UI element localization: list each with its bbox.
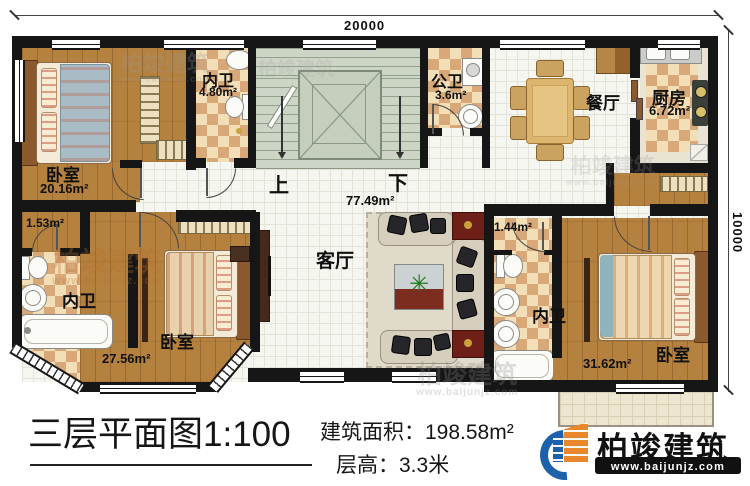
wall (630, 48, 640, 78)
sofa-pillow (430, 218, 446, 234)
wall (128, 254, 138, 348)
bed-throw (600, 255, 613, 337)
logo-building-blue (553, 438, 563, 462)
room-label-living: 客厅 (316, 246, 354, 273)
stove-burner (695, 106, 707, 118)
title-underline (30, 464, 312, 466)
bathtub-inner (24, 319, 108, 344)
wall (552, 216, 562, 358)
door-leaf (648, 216, 650, 250)
toilet-icon (225, 96, 244, 118)
dimension-height-value: 10000 (730, 212, 745, 253)
toilet-icon (503, 254, 523, 278)
window (616, 382, 684, 394)
room-area-closet-left: 1.53m² (26, 216, 64, 230)
wall (630, 118, 640, 163)
room-label-bedroom-bottom-left: 卧室 (160, 328, 194, 353)
room-area-bathroom-top-left: 4.80m² (199, 85, 237, 99)
nightstand (230, 246, 250, 262)
stairs-down-label: 下 (388, 167, 408, 196)
sink-inner (498, 294, 514, 310)
bathtub-inner (495, 354, 549, 378)
wall (80, 212, 90, 254)
door-leaf (139, 212, 141, 247)
elevator-inner-frame (312, 84, 366, 144)
room-area-kitchen: 6.72m² (649, 103, 690, 118)
sofa-pillow (409, 213, 430, 234)
side-table-dot (464, 339, 472, 347)
window (303, 38, 376, 50)
room-area-bedroom-bottom-right: 31.62m² (583, 356, 631, 371)
sideboard-cabinet (596, 44, 634, 74)
dining-chair (573, 116, 590, 140)
plant-icon: ✳ (406, 272, 432, 298)
wall (60, 248, 80, 256)
sofa-pillow (456, 274, 474, 292)
wall (482, 48, 490, 168)
wardrobe-icon (660, 176, 708, 192)
tv-icon (268, 256, 271, 296)
wall (484, 216, 494, 382)
room-area-bedroom-top-left: 20.16m² (40, 181, 88, 196)
toilet-icon (28, 256, 48, 279)
window (500, 38, 585, 50)
stove-burner (695, 86, 707, 98)
side-table-dot (464, 221, 472, 229)
sofa-pillow (386, 214, 407, 235)
stair-arrow-down-head (396, 152, 404, 159)
wall (186, 158, 206, 168)
room-area-bedroom-bottom-left: 27.56m² (102, 351, 150, 366)
window (300, 370, 344, 383)
sofa-pillow (391, 335, 411, 355)
sofa-pillow (414, 338, 432, 356)
wall (420, 36, 428, 168)
bed-blanket (60, 64, 110, 162)
logo-building-orange (564, 422, 588, 462)
window (100, 383, 196, 394)
dining-chair (510, 116, 527, 140)
bed-pillow (41, 112, 57, 152)
dimension-width-value: 20000 (344, 18, 385, 33)
window (392, 370, 436, 383)
stair-arrow-up-head (278, 152, 286, 159)
sink-inner (463, 109, 478, 124)
washing-machine-drum (466, 63, 480, 77)
floor-drain (236, 128, 242, 134)
dining-chair (510, 86, 527, 110)
dining-table-inner (532, 85, 568, 137)
wall (120, 160, 142, 168)
bathtub-faucet (24, 327, 31, 334)
room-area-public-bathroom: 3.6m² (435, 88, 466, 102)
wall (176, 210, 256, 222)
door-leaf (432, 104, 434, 134)
wall (494, 250, 512, 255)
building-area-text: 建筑面积：198.58m² (320, 416, 514, 446)
room-label-dining: 餐厅 (586, 89, 620, 114)
wall (650, 204, 710, 216)
tv-console (142, 258, 148, 342)
sliding-door (636, 98, 643, 120)
wall (22, 248, 32, 256)
brand-website-bar: www.baijunjz.com (595, 457, 741, 474)
wall (250, 212, 260, 352)
window (658, 38, 700, 50)
dining-chair (536, 60, 564, 77)
door-leaf (542, 222, 544, 250)
room-label-bedroom-bottom-right: 卧室 (656, 341, 690, 366)
wall (484, 204, 614, 216)
dining-chair (536, 144, 564, 161)
dimension-line-right (728, 30, 729, 392)
stairs-up-label: 上 (269, 169, 289, 198)
room-label-bathroom-bottom-right: 内卫 (532, 302, 566, 327)
sink-inner (498, 326, 514, 342)
brand-website: www.baijunjz.com (611, 461, 725, 473)
wardrobe-icon (140, 76, 160, 144)
window (164, 38, 244, 50)
window (13, 60, 25, 142)
bed-pillow (674, 298, 690, 336)
room-area-closet-right: 1.44m² (494, 220, 532, 234)
bed-blanket (166, 252, 214, 336)
stair-arrow-up (281, 96, 283, 154)
tv-console (584, 258, 590, 342)
bed-pillow (674, 258, 690, 296)
kitchen-corner-unit (690, 144, 708, 161)
brand-logo-icon (540, 420, 594, 474)
sink-inner (25, 290, 41, 306)
wall (470, 128, 490, 136)
door-leaf (206, 168, 208, 196)
wall (630, 163, 718, 173)
wall (248, 36, 256, 168)
door-leaf (140, 168, 142, 198)
floor-height-text: 层高：3.3米 (336, 449, 449, 479)
wall (248, 368, 488, 382)
page-title: 三层平面图1:100 (28, 406, 291, 457)
room-label-bathroom-bottom-left: 内卫 (62, 287, 96, 312)
bed-pillow (41, 68, 57, 108)
dimension-line-top (14, 15, 720, 16)
sofa-pillow (433, 333, 452, 352)
stair-arrow-down (399, 96, 401, 154)
bed-pillow (216, 295, 232, 331)
wall (12, 200, 136, 212)
wall (186, 48, 196, 170)
window (52, 38, 100, 50)
floor-plan-page: ✳ (0, 0, 750, 486)
